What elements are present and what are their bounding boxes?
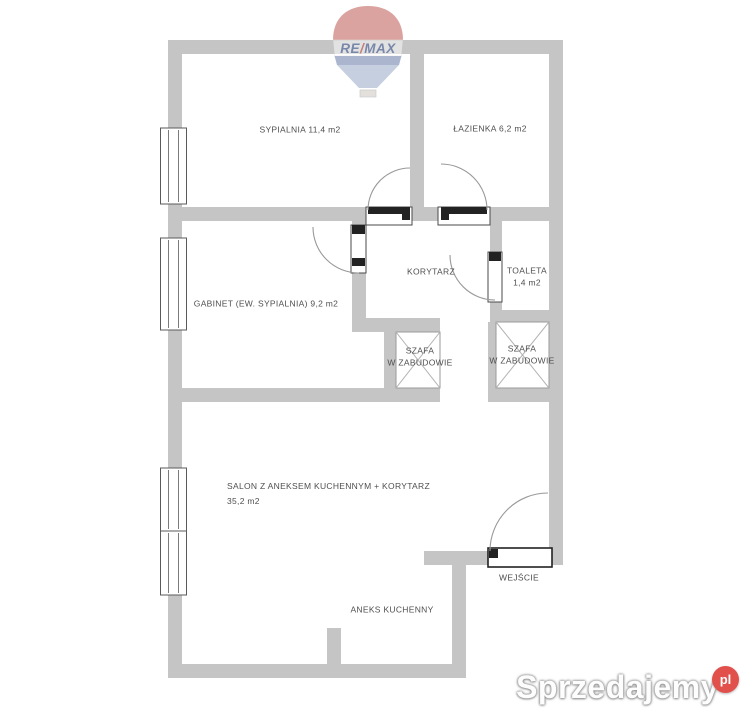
- door-arc-lazienka: [441, 164, 487, 210]
- wall-under-lazienka: [487, 207, 549, 221]
- label-szafa-right-line2: W ZABUDOWIE: [489, 356, 554, 367]
- door-lazienka: [438, 164, 490, 225]
- door-sypialnia: [366, 168, 412, 225]
- label-szafa-right-line1: SZAFA: [489, 344, 554, 355]
- remax-logo-text: RE/MAX: [340, 41, 396, 56]
- wall-middle: [182, 388, 440, 402]
- label-salon: SALON Z ANEKSEM KUCHENNYM + KORYTARZ 35,…: [227, 481, 430, 507]
- balloon-band-blue: [335, 56, 402, 65]
- wall-bottom: [168, 664, 466, 678]
- door-toaleta: [450, 252, 502, 302]
- balloon-cone: [337, 65, 399, 88]
- floorplan: RE/MAX SYPIALNIA 11,4 m2 ŁAZIENKA 6,2 m2…: [0, 0, 743, 720]
- label-korytarz: KORYTARZ: [407, 267, 455, 278]
- remax-balloon-logo: RE/MAX: [333, 6, 403, 97]
- label-szafa-right: SZAFA W ZABUDOWIE: [489, 344, 554, 367]
- door-arc-entrance: [490, 493, 548, 551]
- wall-right: [549, 40, 563, 565]
- window-salon-lower: [161, 531, 187, 595]
- wall-toaleta-left-top: [490, 221, 502, 253]
- wall-divider-sypialnia-lazienka: [410, 54, 424, 207]
- label-toaleta-name: TOALETA: [507, 266, 547, 277]
- balloon-basket: [360, 90, 376, 97]
- sprzedajemy-watermark: Sprzedajemy pl: [516, 669, 739, 706]
- wall-between-doors: [410, 207, 441, 221]
- label-salon-name: SALON Z ANEKSEM KUCHENNYM + KORYTARZ: [227, 481, 430, 492]
- label-szafa-left-line2: W ZABUDOWIE: [387, 358, 452, 369]
- label-toaleta: TOALETA 1,4 m2: [507, 266, 547, 289]
- label-toaleta-area: 1,4 m2: [507, 278, 547, 289]
- label-salon-area: 35,2 m2: [227, 496, 430, 507]
- watermark-pl-badge: pl: [712, 666, 739, 693]
- label-gabinet: GABINET (EW. SYPIALNIA) 9,2 m2: [194, 299, 338, 310]
- label-wejscie: WEJŚCIE: [499, 573, 539, 584]
- wall-under-sypialnia: [182, 207, 368, 221]
- label-lazienka: ŁAZIENKA 6,2 m2: [453, 124, 526, 135]
- wall-kitchen-stub: [327, 628, 341, 664]
- window-sypialnia: [161, 128, 187, 204]
- wall-toaleta-bottom: [490, 310, 563, 322]
- door-gabinet: [313, 225, 366, 273]
- window-gabinet: [161, 238, 187, 330]
- label-sypialnia: SYPIALNIA 11,4 m2: [259, 125, 340, 136]
- label-szafa-left-line1: SZAFA: [387, 346, 452, 357]
- wall-closet-right-bottom: [488, 388, 563, 402]
- wall-entry-stub: [452, 565, 466, 664]
- balloon-top: [333, 6, 403, 40]
- door-entrance: [488, 493, 552, 567]
- label-szafa-left: SZAFA W ZABUDOWIE: [387, 346, 452, 369]
- window-salon-upper: [161, 468, 187, 531]
- wall-entry-horizontal: [424, 551, 490, 565]
- label-aneks-kuchenny: ANEKS KUCHENNY: [350, 605, 433, 616]
- wall-closet-left-top: [352, 318, 440, 332]
- door-arc-sypialnia: [368, 168, 410, 210]
- watermark-text: Sprzedajemy: [516, 669, 719, 706]
